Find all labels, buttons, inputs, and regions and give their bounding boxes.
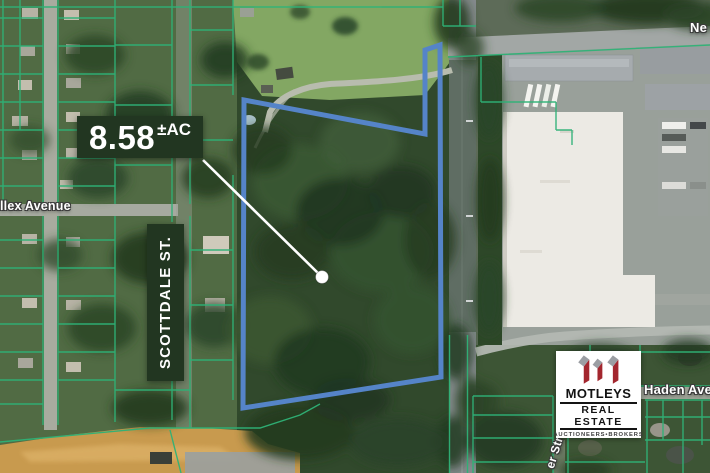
acreage-unit: ±AC: [157, 120, 191, 140]
logo-name: MOTLEYS: [566, 387, 632, 400]
street-label-haden-avenue: Haden Avenue: [644, 382, 710, 397]
motleys-logo: MOTLEYS REAL ESTATE AUCTIONEERS•BROKERS: [556, 351, 641, 438]
acreage-callout: 8.58 ±AC: [77, 116, 203, 158]
street-label-top-right-partial: Ne: [690, 20, 707, 35]
aerial-map-flyer: llex Avenue Haden Avenue Ne er Str 8.58 …: [0, 0, 710, 473]
marker-dot: [316, 271, 329, 284]
logo-division: REAL ESTATE: [560, 404, 637, 428]
motleys-m-icon: [567, 354, 631, 386]
acreage-value: 8.58: [89, 121, 155, 154]
street-label-scottdale: SCOTTDALE ST.: [147, 224, 184, 381]
logo-tagline: AUCTIONEERS•BROKERS: [553, 432, 643, 438]
street-label-allex-avenue: llex Avenue: [0, 199, 71, 213]
scottdale-label-text: SCOTTDALE ST.: [157, 236, 174, 369]
